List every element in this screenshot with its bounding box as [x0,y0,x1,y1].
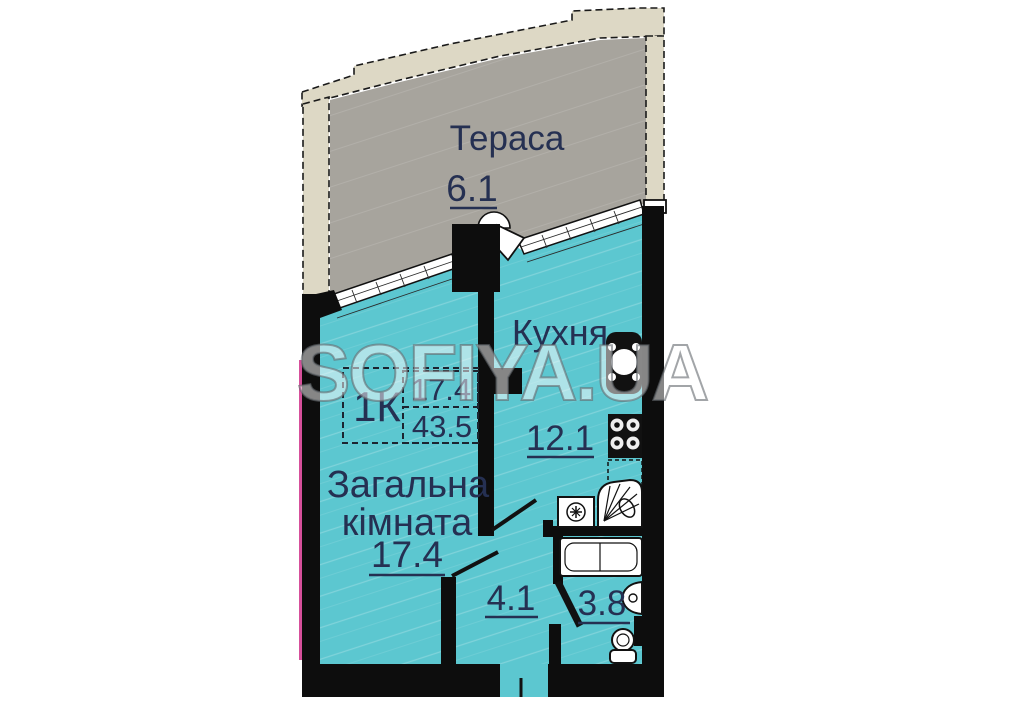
terrace-wall-block [452,224,500,292]
terrace-name-label: Тераса [450,119,565,158]
terrace-right-band [646,36,664,202]
radiator-icon [634,616,642,646]
bathtub-icon [560,538,642,576]
living-hall-wall-stub [441,577,456,665]
kitchen-area-label: 12.1 [526,419,594,458]
entrance-opening [500,664,548,697]
corner-sink-icon [598,480,642,527]
bathroom-lower-wall [549,624,561,666]
toilet-icon [610,629,636,663]
hall-area-label: 4.1 [487,579,536,618]
washing-machine-icon [558,497,594,527]
bottom-wall-left [302,664,500,697]
floorplan-image: 1К 17.4 43.5 Тераса 6.1 Кухня 12.1 Загал… [0,0,1024,724]
right-wall [642,206,664,696]
floor-plan: 1К 17.4 43.5 Тераса 6.1 Кухня 12.1 Загал… [0,0,1024,724]
living-area-label: 17.4 [371,534,443,575]
stove-icon [608,414,642,458]
terrace-left-band [303,97,329,299]
watermark: SOFIYA.UA [297,328,707,417]
living-name-label-line1: Загальна [327,464,490,506]
bottom-wall-right [548,664,664,697]
terrace-area-label: 6.1 [446,168,497,209]
bathroom-top-wall-jamb [543,520,553,537]
bathroom-area-label: 3.8 [578,584,627,623]
